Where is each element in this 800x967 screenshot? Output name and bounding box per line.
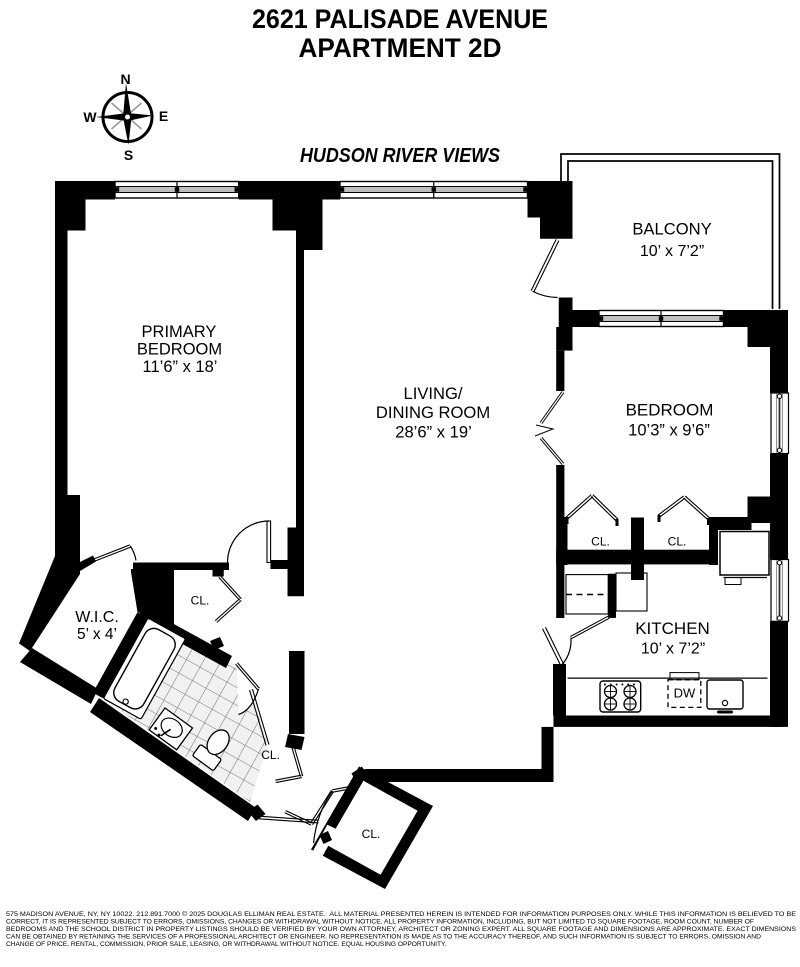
svg-text:CORRECT, IT IS REPRESENTED SUB: CORRECT, IT IS REPRESENTED SUBJECT TO ER…: [6, 919, 754, 926]
svg-text:W.I.C.: W.I.C.: [75, 609, 119, 626]
svg-text:HUDSON RIVER VIEWS: HUDSON RIVER VIEWS: [300, 145, 501, 167]
svg-text:BEDROOM: BEDROOM: [626, 401, 714, 420]
svg-text:CL.: CL.: [362, 827, 381, 841]
svg-text:11’6” x 18’: 11’6” x 18’: [143, 358, 218, 376]
svg-text:LIVING/: LIVING/: [403, 384, 462, 403]
svg-text:S: S: [124, 147, 133, 163]
svg-text:CL.: CL.: [668, 535, 687, 549]
svg-text:CL.: CL.: [191, 594, 210, 608]
svg-text:10’3” x 9’6”: 10’3” x 9’6”: [628, 422, 710, 440]
svg-text:5’ x 4’: 5’ x 4’: [77, 626, 117, 643]
svg-text:BEDROOM: BEDROOM: [137, 341, 222, 359]
svg-text:10’ x 7’2”: 10’ x 7’2”: [640, 243, 704, 260]
svg-text:N: N: [120, 71, 130, 87]
svg-text:10’ x 7’2”: 10’ x 7’2”: [641, 640, 705, 657]
svg-text:BALCONY: BALCONY: [632, 220, 711, 239]
svg-text:KITCHEN: KITCHEN: [635, 619, 710, 638]
svg-text:28’6” x 19’: 28’6” x 19’: [395, 423, 472, 442]
svg-text:W: W: [83, 109, 97, 125]
svg-text:CL.: CL.: [261, 748, 280, 762]
svg-text:DINING ROOM: DINING ROOM: [376, 403, 490, 422]
svg-text:CHANGE OF PRICE, RENTAL, COMMI: CHANGE OF PRICE, RENTAL, COMMISSION, PRI…: [6, 941, 447, 948]
svg-text:PRIMARY: PRIMARY: [142, 323, 217, 341]
svg-text:575 MADISON AVENUE, NY, NY 100: 575 MADISON AVENUE, NY, NY 10022. 212.89…: [6, 910, 797, 918]
svg-text:E: E: [159, 108, 168, 124]
svg-text:2621 PALISADE AVENUE: 2621 PALISADE AVENUE: [252, 4, 548, 34]
svg-text:APARTMENT 2D: APARTMENT 2D: [299, 33, 502, 63]
svg-text:CL.: CL.: [591, 535, 610, 549]
svg-text:BEDROOMS AND THE SCHOOL DISTRI: BEDROOMS AND THE SCHOOL DISTRICT IN PROP…: [6, 926, 797, 933]
svg-text:DW: DW: [674, 686, 696, 701]
svg-text:CAN BE OBTAINED BY RETAINING T: CAN BE OBTAINED BY RETAINING THE SERVICE…: [6, 934, 761, 941]
